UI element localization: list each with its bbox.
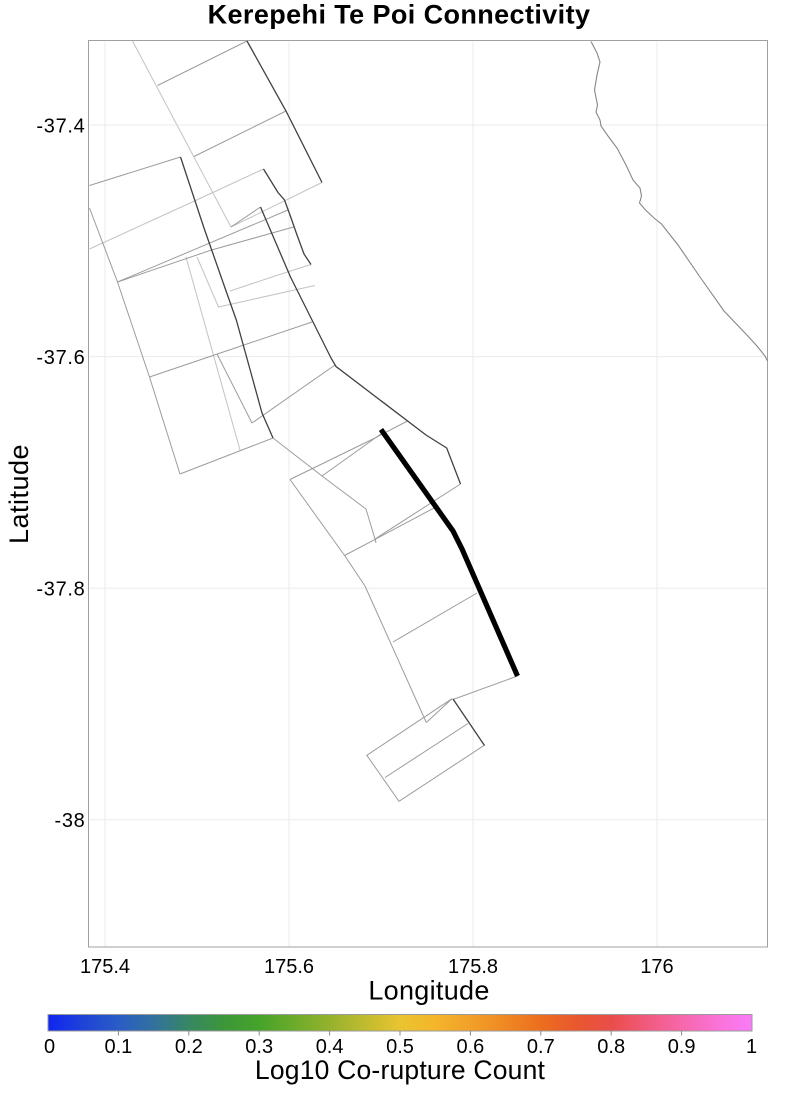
svg-text:175.4: 175.4 [80,956,130,978]
svg-text:0: 0 [44,1036,55,1058]
svg-text:0.9: 0.9 [668,1036,696,1058]
svg-text:-37.6: -37.6 [36,347,85,369]
svg-text:-37.4: -37.4 [36,116,85,138]
svg-text:Longitude: Longitude [368,976,489,1006]
svg-text:175.6: 175.6 [264,956,314,978]
svg-text:0.1: 0.1 [104,1036,132,1058]
svg-text:176: 176 [640,956,673,978]
svg-text:0.2: 0.2 [175,1036,203,1058]
svg-text:0.8: 0.8 [597,1036,625,1058]
svg-text:-38: -38 [54,810,85,832]
svg-text:Kerepehi Te Poi Connectivity: Kerepehi Te Poi Connectivity [208,0,591,30]
svg-text:Log10 Co-rupture Count: Log10 Co-rupture Count [255,1055,546,1085]
svg-text:Latitude: Latitude [4,444,34,544]
svg-text:1: 1 [746,1036,757,1058]
svg-text:-37.8: -37.8 [36,579,85,601]
